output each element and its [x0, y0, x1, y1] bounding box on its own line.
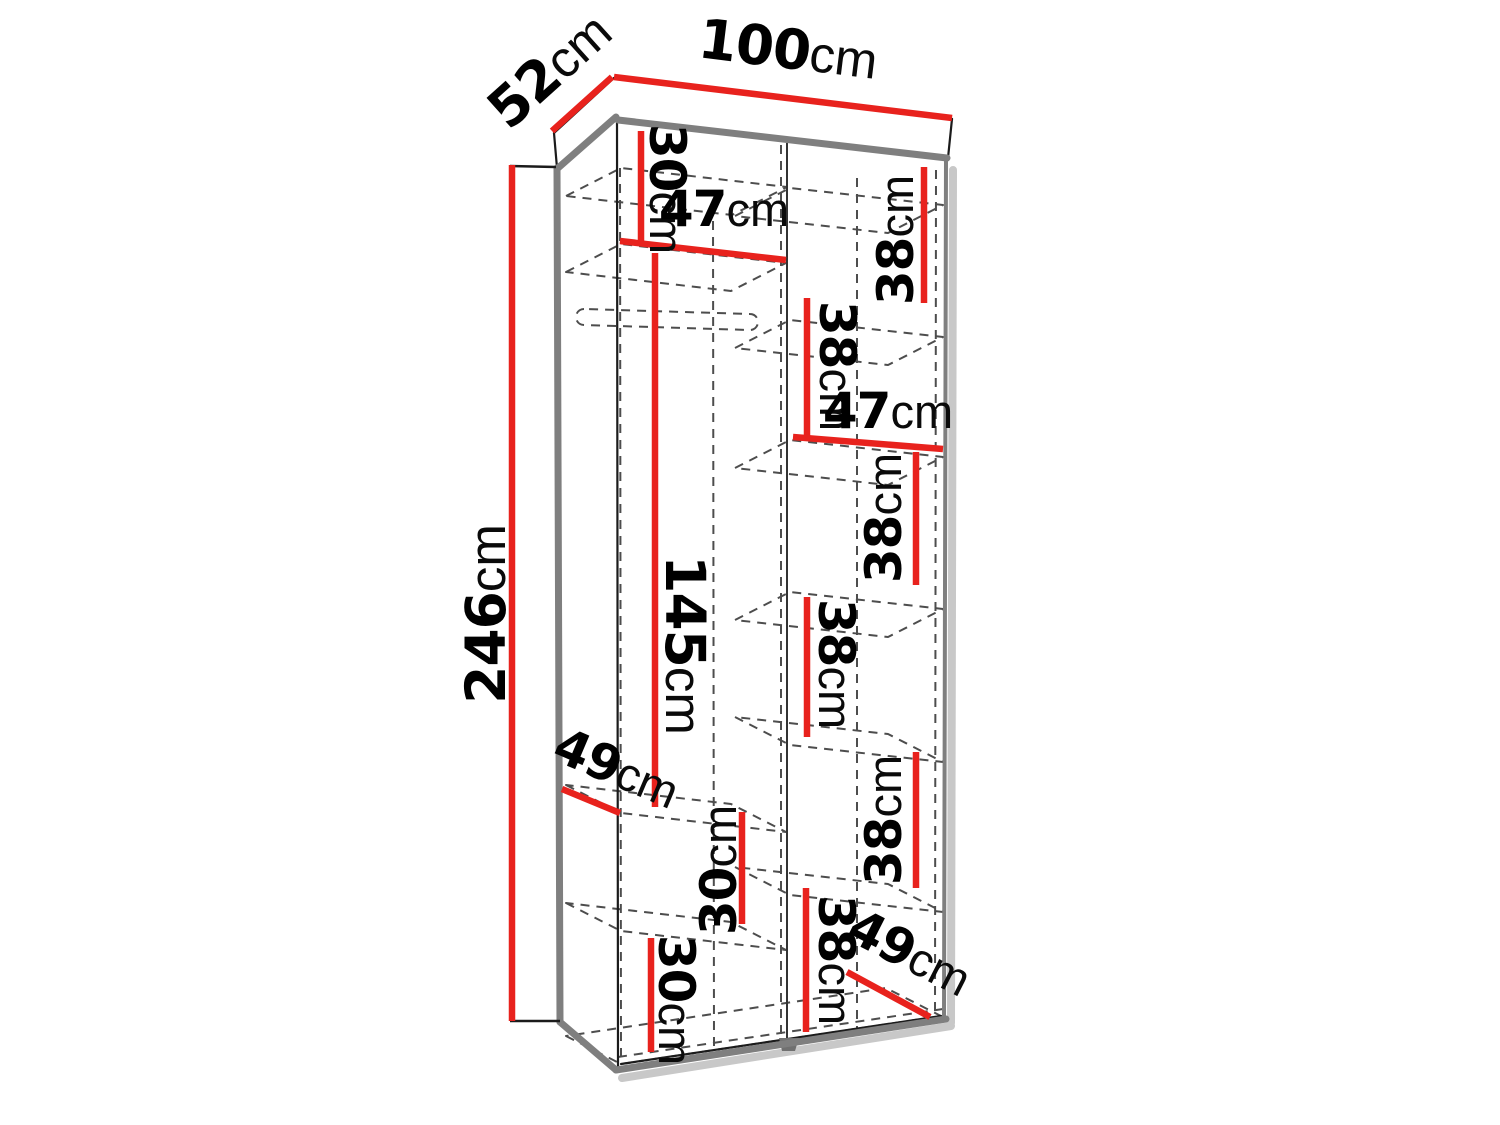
dim-tick-height-top: [510, 166, 556, 167]
dim-left-shelf-width-label: 47cm: [659, 180, 789, 238]
dim-right-gap-1-label: 38cm: [867, 175, 925, 305]
right-outer-edge: [944, 158, 946, 1018]
dim-right-shelf-width-label: 47cm: [823, 382, 953, 440]
left-outer-edge: [557, 168, 560, 1022]
front-left-inner-edge: [617, 120, 618, 1068]
dim-left-lower-gap-1-label: 30cm: [690, 805, 748, 935]
dim-right-gap-4-label: 38cm: [807, 599, 865, 729]
wardrobe-dimension-diagram: 52cm 100cm 246cm 30cm 47cm 145cm 49cm 30…: [0, 0, 1500, 1125]
dim-left-lower-gap-2-label: 30cm: [647, 935, 705, 1065]
dashed-front-left-line: [620, 168, 621, 1058]
left-side-panel: [557, 120, 618, 1070]
dimension-labels: 52cm 100cm 246cm 30cm 47cm 145cm 49cm 30…: [454, 0, 981, 1065]
dashed-inner-right-line: [935, 170, 936, 1014]
diagram-canvas: 52cm 100cm 246cm 30cm 47cm 145cm 49cm 30…: [0, 0, 1500, 1125]
dim-left-hanging-height-label: 145cm: [653, 555, 717, 735]
dim-right-gap-5-label: 38cm: [855, 755, 913, 885]
dim-height-label: 246cm: [454, 524, 518, 704]
dim-right-gap-3-label: 38cm: [855, 453, 913, 583]
dim-width-label: 100cm: [695, 6, 881, 91]
shadow-right: [951, 170, 953, 1023]
